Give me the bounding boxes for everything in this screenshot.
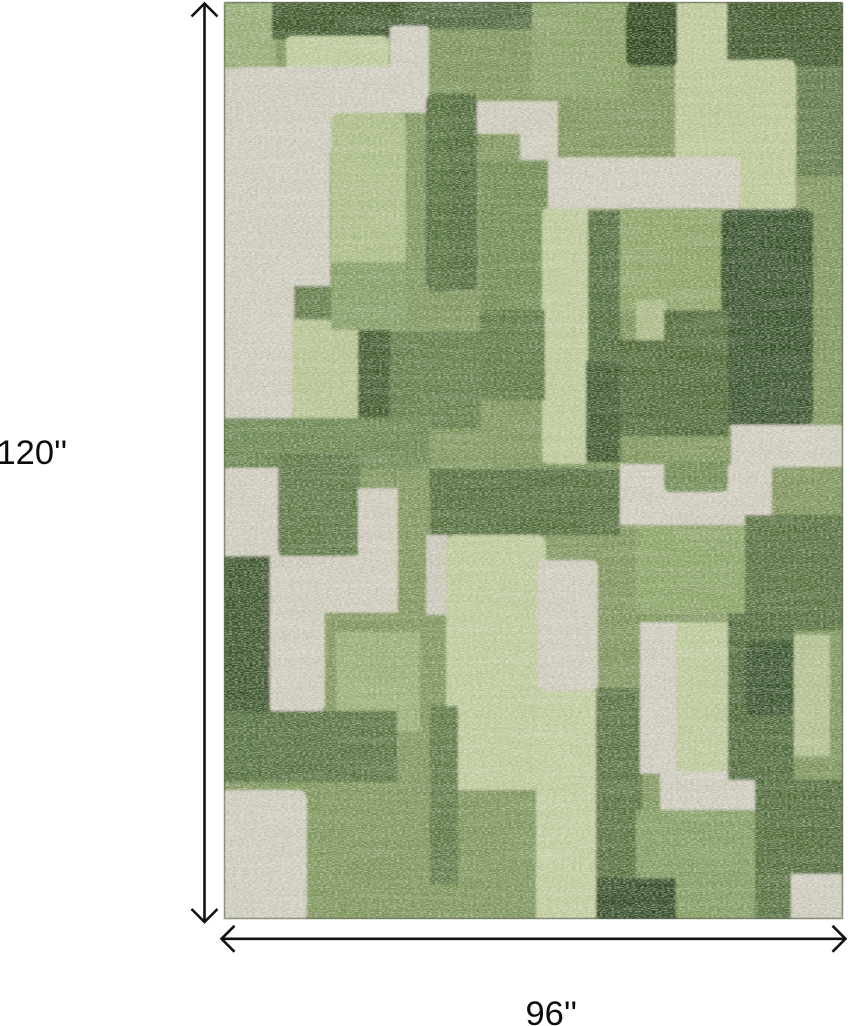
svg-text:120'': 120''	[0, 434, 67, 472]
svg-text:96'': 96''	[526, 995, 578, 1026]
